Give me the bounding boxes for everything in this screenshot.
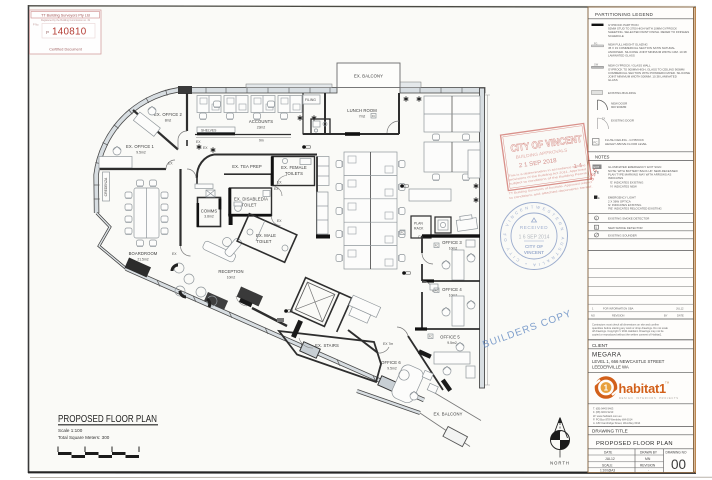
- svg-text:9.5m2: 9.5m2: [136, 151, 146, 155]
- svg-text:P. PO Box 878 Wembley WA 6014: P. PO Box 878 Wembley WA 6014: [593, 417, 633, 421]
- svg-text:A. 183 Cambridge Street, Wembl: A. 183 Cambridge Street, Wembley 6014: [593, 421, 641, 425]
- svg-text:PLAN: PLAN: [414, 222, 423, 226]
- svg-text:21.5m2: 21.5m2: [137, 258, 148, 262]
- svg-text:EXISTING DOOR: EXISTING DOOR: [611, 119, 634, 123]
- svg-text:900 900MM: 900 900MM: [611, 105, 627, 109]
- svg-text:Registered by the Building Com: Registered by the Building Commission no…: [41, 19, 91, 22]
- svg-text:JOINT MINIMUM WIDTH 500MM. 10.: JOINT MINIMUM WIDTH 500MM. 10.38 LAMINAT…: [608, 75, 677, 79]
- svg-text:DESIGN INTERIORS PROJECTS: DESIGN INTERIORS PROJECTS: [619, 396, 679, 400]
- svg-text:Scale 1:100: Scale 1:100: [58, 428, 83, 433]
- svg-text:FC: FC: [429, 335, 433, 339]
- svg-text:EXISTING SOUNDER: EXISTING SOUNDER: [608, 234, 637, 238]
- svg-text:EX. FEMALE: EX. FEMALE: [281, 165, 307, 170]
- svg-text:EXIT: EXIT: [594, 165, 600, 169]
- svg-text:MN: MN: [645, 457, 651, 461]
- svg-text:EX. STAIRS: EX. STAIRS: [315, 343, 339, 348]
- svg-text:EX. MALE: EX. MALE: [256, 233, 276, 238]
- svg-text:EX: EX: [274, 187, 279, 191]
- svg-text:EX. OFFICE 2: EX. OFFICE 2: [154, 112, 183, 117]
- svg-text:habitat1: habitat1: [619, 381, 667, 396]
- svg-text:E: E: [598, 196, 600, 200]
- svg-text:EX: EX: [277, 181, 282, 185]
- svg-text:CLIENT: CLIENT: [592, 343, 608, 348]
- svg-text:OFFICE 4: OFFICE 4: [442, 287, 462, 292]
- svg-text:9.5m2: 9.5m2: [387, 367, 397, 371]
- svg-text:COMMS: COMMS: [201, 209, 218, 214]
- svg-text:LEEDERVILLE WA: LEEDERVILLE WA: [592, 365, 629, 370]
- svg-text:LAMINATED GLASS: LAMINATED GLASS: [608, 53, 635, 57]
- svg-text:F. (08) 9201 9213: F. (08) 9201 9213: [593, 410, 614, 414]
- svg-text:NEW SMOKE DETECTOR: NEW SMOKE DETECTOR: [608, 226, 643, 230]
- svg-text:Contractors must check all dim: Contractors must check all dimensions on…: [592, 322, 659, 326]
- svg-text:JUL12: JUL12: [605, 457, 615, 461]
- svg-text:INDICATES: INDICATES: [608, 176, 623, 180]
- svg-text:S: S: [595, 226, 597, 230]
- svg-text:10m2: 10m2: [227, 276, 236, 280]
- svg-text:GLASS: GLASS: [608, 78, 618, 82]
- svg-text:SCALE: SCALE: [602, 463, 612, 467]
- svg-text:1: 1: [604, 384, 609, 393]
- svg-text:'RE' INDICATES RELOCATED EXIST: 'RE' INDICATES RELOCATED EXISTING: [608, 207, 662, 211]
- svg-text:DATE: DATE: [604, 450, 612, 454]
- svg-text:EX. DISABLED/A: EX. DISABLED/A: [234, 197, 268, 202]
- svg-text:EX. BALCONY: EX. BALCONY: [354, 74, 383, 79]
- svg-text:8m2: 8m2: [165, 119, 172, 123]
- svg-text:LUNCH ROOM: LUNCH ROOM: [347, 108, 377, 113]
- svg-text:PROPOSED FLOOR PLAN: PROPOSED FLOOR PLAN: [596, 441, 673, 447]
- svg-text:7m2: 7m2: [359, 115, 366, 119]
- svg-text:NORTH: NORTH: [550, 461, 570, 466]
- svg-text:ACCOUNTS: ACCOUNTS: [249, 119, 273, 124]
- svg-text:RACK: RACK: [414, 227, 424, 231]
- svg-text:EX: EX: [203, 146, 208, 150]
- svg-text:EX: EX: [277, 219, 282, 223]
- svg-text:P: P: [46, 30, 49, 35]
- svg-text:DRAWING TITLE: DRAWING TITLE: [592, 429, 628, 434]
- svg-text:LEVEL 1, 666 NEWCASTLE STREET: LEVEL 1, 666 NEWCASTLE STREET: [592, 359, 665, 364]
- svg-text:PARTITIONING LEGEND: PARTITIONING LEGEND: [595, 12, 653, 17]
- svg-text:EX 7m: EX 7m: [383, 342, 393, 346]
- svg-text:DRAWING NO: DRAWING NO: [666, 450, 687, 454]
- svg-text:CITY OF: CITY OF: [525, 244, 543, 249]
- svg-text:EX. BALCONY: EX. BALCONY: [433, 412, 462, 417]
- svg-text:REVISION: REVISION: [640, 463, 656, 467]
- svg-text:140810: 140810: [52, 27, 87, 38]
- svg-text:9.5m2: 9.5m2: [447, 341, 457, 345]
- svg-text:TM: TM: [665, 381, 670, 385]
- svg-text:OFFICE 6: OFFICE 6: [381, 360, 401, 365]
- svg-text:RECEPTION: RECEPTION: [218, 269, 243, 274]
- svg-text:NO: NO: [591, 314, 595, 318]
- svg-text:3.8m2: 3.8m2: [204, 215, 214, 219]
- svg-text:EX. OFFICE 1: EX. OFFICE 1: [126, 144, 155, 149]
- svg-text:1:100@A3: 1:100@A3: [600, 468, 615, 472]
- svg-text:23m2: 23m2: [257, 126, 266, 130]
- svg-text:HEIGHT ABOVE FLOOR LEVEL: HEIGHT ABOVE FLOOR LEVEL: [605, 142, 647, 146]
- svg-text:OFFICE 3: OFFICE 3: [442, 240, 462, 245]
- svg-text:EXISTING BUILDING: EXISTING BUILDING: [608, 91, 637, 95]
- svg-text:DATE: DATE: [677, 314, 684, 318]
- svg-text:TOILET: TOILET: [241, 203, 257, 208]
- svg-text:FC: FC: [372, 114, 376, 118]
- svg-text:quantities before starting any: quantities before starting any work or s…: [592, 326, 668, 330]
- svg-text:BOARDROOM: BOARDROOM: [129, 251, 158, 256]
- svg-text:copied or reproduced without t: copied or reproduced without the written…: [592, 333, 662, 337]
- svg-text:OFFICE 5: OFFICE 5: [440, 335, 460, 340]
- svg-text:EX: EX: [168, 162, 173, 166]
- svg-text:EX: EX: [602, 118, 606, 121]
- svg-text:'N' INDICATES NEW: 'N' INDICATES NEW: [610, 184, 637, 188]
- svg-text:RECEIVED: RECEIVED: [520, 225, 548, 230]
- svg-text:1 6 SEP 2014: 1 6 SEP 2014: [519, 235, 550, 241]
- svg-text:REVISION: REVISION: [612, 314, 625, 318]
- svg-text:EX. TEA PREP: EX. TEA PREP: [232, 164, 262, 169]
- svg-text:VINCENT: VINCENT: [524, 250, 544, 255]
- svg-text:FC: FC: [435, 244, 439, 248]
- svg-text:P No.: P No.: [33, 24, 39, 27]
- svg-text:FOR INFORMATION GBA: FOR INFORMATION GBA: [603, 306, 634, 310]
- svg-text:EXISTING SMOKE DETECTOR: EXISTING SMOKE DETECTOR: [608, 217, 649, 221]
- svg-text:T. (08) 9443 9463: T. (08) 9443 9463: [593, 407, 614, 411]
- svg-text:SCHEDULE: SCHEDULE: [608, 34, 624, 38]
- svg-text:W. www.habitat1.com.au: W. www.habitat1.com.au: [593, 414, 622, 418]
- svg-text:EX: EX: [172, 252, 177, 256]
- svg-text:BY: BY: [664, 314, 668, 318]
- svg-text:00: 00: [671, 457, 686, 472]
- svg-text:Certified Document: Certified Document: [49, 48, 82, 52]
- svg-text:FILING: FILING: [305, 98, 316, 102]
- svg-text:off drawings. Copyright © 2011: off drawings. Copyright © 2011 Habitat1.…: [592, 329, 664, 333]
- svg-text:TOILETS: TOILETS: [285, 171, 303, 176]
- svg-text:Total Square Meters: 300: Total Square Meters: 300: [58, 435, 110, 440]
- svg-text:PROPOSED FLOOR PLAN: PROPOSED FLOOR PLAN: [58, 414, 157, 425]
- svg-text:JUL12: JUL12: [676, 306, 684, 310]
- svg-text:EX: EX: [196, 140, 201, 144]
- svg-text:MEGARA: MEGARA: [592, 352, 622, 359]
- svg-text:TOILET: TOILET: [256, 239, 272, 244]
- svg-text:CREDENZA: CREDENZA: [104, 177, 108, 196]
- svg-text:-: -: [648, 468, 649, 472]
- svg-text:9m: 9m: [259, 139, 264, 143]
- svg-text:FC: FC: [435, 289, 439, 293]
- svg-text:SHELVES: SHELVES: [201, 128, 217, 132]
- svg-text:NOTES: NOTES: [595, 155, 610, 160]
- svg-text:FC: FC: [401, 231, 405, 235]
- svg-text:S: S: [595, 216, 597, 220]
- svg-text:DRAWN BY: DRAWN BY: [640, 450, 658, 454]
- svg-text:TT Building Surveyors Pty Ltd: TT Building Surveyors Pty Ltd: [41, 14, 90, 18]
